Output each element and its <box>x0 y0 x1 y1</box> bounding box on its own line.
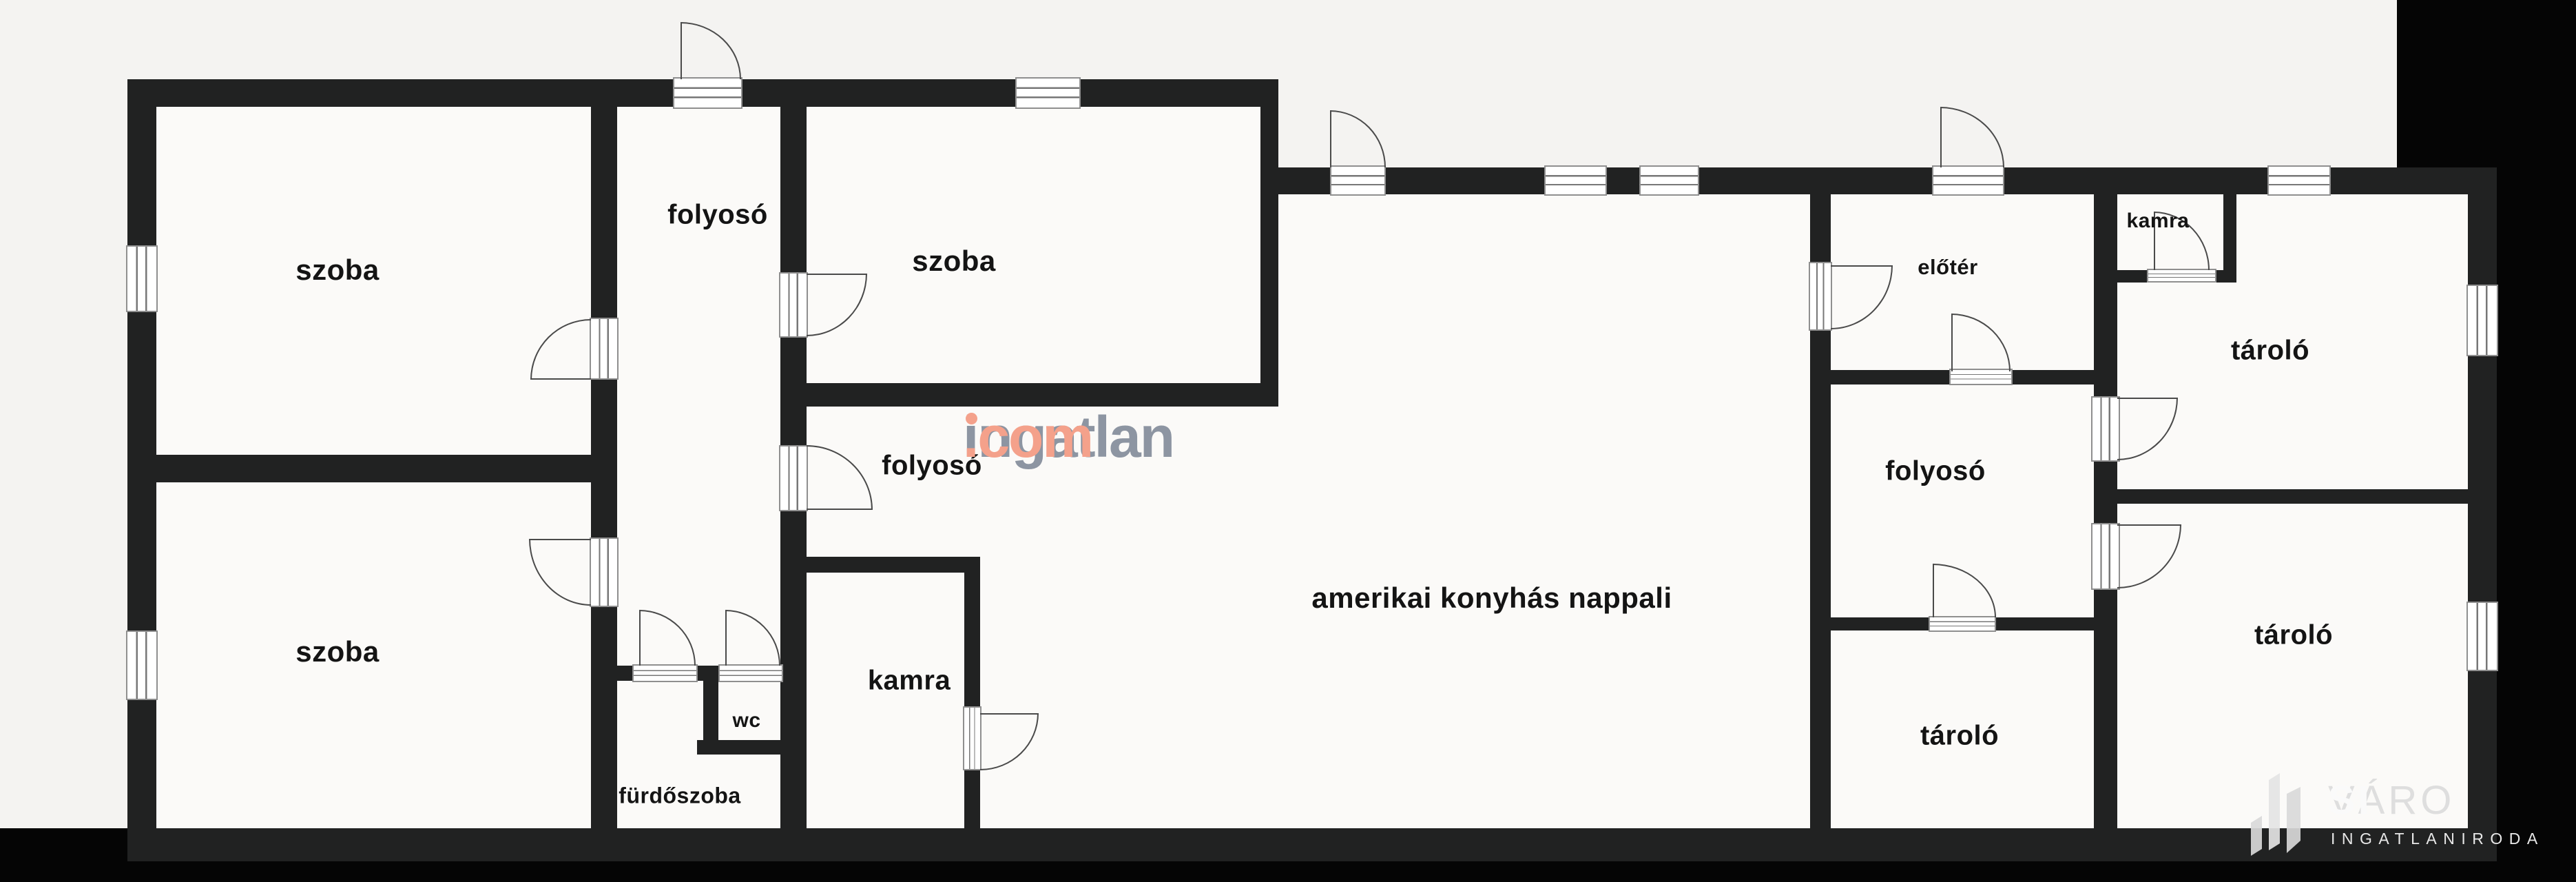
room-label-tarolo-top-right: tároló <box>2231 336 2309 367</box>
wall <box>2117 270 2147 283</box>
room-label-kamra-left: kamra <box>868 666 951 697</box>
window <box>2466 602 2498 671</box>
window <box>1544 165 1607 196</box>
wall <box>703 681 718 740</box>
door-threshold <box>718 664 783 682</box>
door-threshold <box>1932 165 2004 196</box>
wall <box>964 770 980 828</box>
wall <box>1810 617 1929 630</box>
door-threshold <box>2091 396 2120 462</box>
wall <box>698 666 718 681</box>
door-threshold <box>632 664 698 682</box>
room-label-tarolo-middle-right: tároló <box>2254 620 2333 651</box>
wall <box>591 666 632 681</box>
room-label-szoba-top-left: szoba <box>295 254 380 287</box>
wall <box>127 455 594 482</box>
room-label-tarolo-bottom: tároló <box>1920 721 1999 752</box>
room-label-eloter: előtér <box>1918 255 1977 280</box>
wall <box>2468 167 2497 285</box>
wall <box>1607 167 1639 194</box>
wall <box>591 107 617 318</box>
black-margin-right <box>2495 0 2576 882</box>
wall <box>780 107 807 272</box>
window <box>2466 285 2498 356</box>
wall <box>2094 590 2117 828</box>
window <box>1015 77 1081 109</box>
wall <box>2094 194 2117 396</box>
window <box>2267 165 2331 196</box>
room-label-szoba-middle: szoba <box>912 245 996 278</box>
varosi-logo-subtitle: INGATLANIRODA <box>2331 830 2544 848</box>
wall <box>783 666 807 681</box>
wall <box>1386 167 1544 194</box>
wall <box>127 828 2497 861</box>
wall <box>2117 489 2468 504</box>
watermark-i-dot-icon <box>966 413 977 424</box>
wall <box>1278 167 1330 194</box>
door-threshold <box>2147 269 2216 283</box>
door-threshold <box>779 272 808 338</box>
door-swing <box>681 22 741 79</box>
wall <box>1810 331 1831 828</box>
wall <box>2094 462 2117 523</box>
door-threshold <box>2091 523 2120 590</box>
door-threshold <box>1929 616 1996 632</box>
wall <box>1996 617 2096 630</box>
window <box>1639 165 1699 196</box>
door-swing <box>1330 110 1386 167</box>
door-threshold <box>779 445 808 511</box>
window <box>126 245 158 312</box>
window <box>126 630 158 700</box>
room-label-kamra-right: kamra <box>2127 209 2190 233</box>
room-label-wc: wc <box>732 709 760 732</box>
wall <box>1810 194 1831 262</box>
wall <box>591 380 617 537</box>
door-swing <box>1940 107 2004 167</box>
door-threshold <box>1809 262 1832 331</box>
wall <box>807 557 980 573</box>
wall <box>2468 356 2497 602</box>
wall <box>2004 167 2267 194</box>
black-band-bottom <box>0 861 2576 882</box>
room-label-furdoszoba: fürdőszoba <box>619 783 740 809</box>
door-threshold <box>590 537 619 607</box>
door-threshold <box>673 77 742 109</box>
room-label-folyoso-right: folyosó <box>1885 456 1986 487</box>
door-threshold <box>1330 165 1386 196</box>
wall <box>1810 370 1949 384</box>
wall <box>1260 79 1278 405</box>
wall <box>697 740 800 755</box>
wall <box>2013 370 2094 384</box>
wall <box>742 79 1015 107</box>
door-threshold <box>590 318 619 380</box>
floor-plan: szoba szoba folyosó szoba folyosó kamra … <box>0 0 2576 882</box>
wall <box>1699 167 1932 194</box>
wall <box>780 383 1278 407</box>
room-label-nappali: amerikai konyhás nappali <box>1311 582 1672 615</box>
wall <box>591 607 617 828</box>
black-corner-bottom-left <box>0 828 128 882</box>
watermark-tld-text: .com <box>963 404 1092 471</box>
room-label-folyoso-top: folyosó <box>667 200 768 231</box>
room-label-szoba-bottom-left: szoba <box>295 635 380 668</box>
wall <box>2223 194 2236 283</box>
wall <box>964 573 980 706</box>
wall <box>127 79 673 107</box>
logo-name-bold: SI <box>2328 777 2373 823</box>
wall <box>1081 79 1278 107</box>
varosi-buildings-icon <box>2247 766 2307 857</box>
door-threshold <box>963 706 981 770</box>
